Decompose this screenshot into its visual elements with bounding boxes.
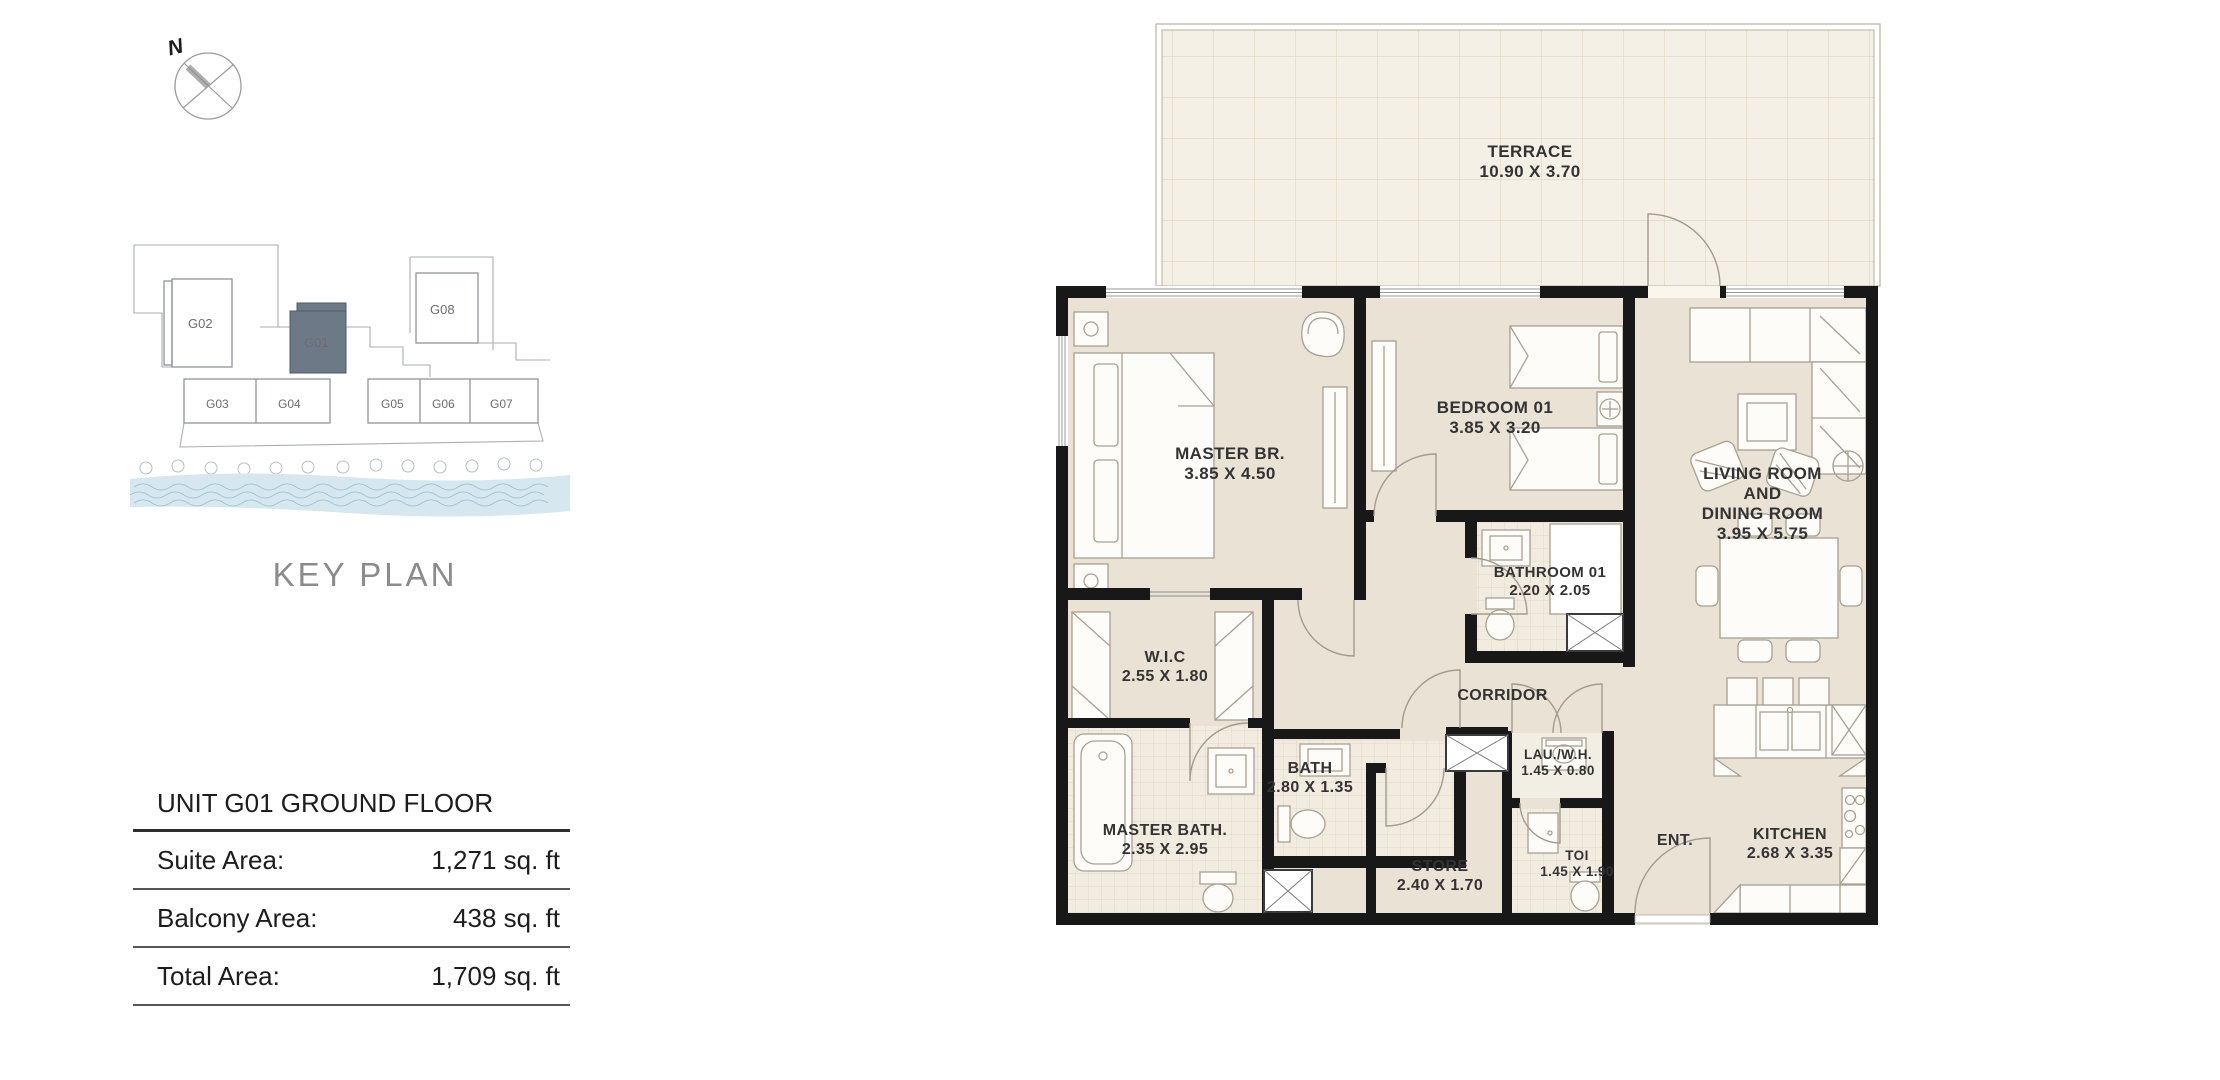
floorplan-sheet: N bbox=[0, 0, 2220, 1080]
room-dims: 2.35 X 2.95 bbox=[1072, 841, 1258, 860]
master-armchair bbox=[1302, 312, 1344, 357]
room-dims: 3.85 X 4.50 bbox=[1130, 464, 1330, 484]
unit-label-g03: G03 bbox=[206, 397, 229, 411]
key-plan-caption: KEY PLAN bbox=[240, 556, 490, 594]
room-dims: 2.55 X 1.80 bbox=[1090, 668, 1240, 687]
table-row-suite: Suite Area: 1,271 sq. ft bbox=[133, 832, 570, 890]
room-name: BATH bbox=[1240, 760, 1380, 779]
room-dims: 2.20 X 2.05 bbox=[1464, 582, 1636, 600]
store-label: STORE 2.40 X 1.70 bbox=[1362, 858, 1518, 896]
room-dims: 3.95 X 5.75 bbox=[1665, 524, 1860, 544]
unit-label-g05: G05 bbox=[381, 397, 404, 411]
row-label: Total Area: bbox=[157, 961, 280, 992]
room-name: STORE bbox=[1362, 858, 1518, 877]
room-dims: 2.80 X 1.35 bbox=[1240, 779, 1380, 798]
bedroom-01-label: BEDROOM 01 3.85 X 3.20 bbox=[1395, 398, 1595, 438]
room-name: LAU./W.H. bbox=[1502, 747, 1614, 763]
row-label: Balcony Area: bbox=[157, 903, 317, 934]
room-name: TOI bbox=[1518, 848, 1636, 864]
row-value: 1,271 sq. ft bbox=[431, 845, 560, 876]
unit-label-g06: G06 bbox=[432, 397, 455, 411]
room-name: KITCHEN bbox=[1712, 826, 1868, 845]
room-dims: 2.68 X 3.35 bbox=[1712, 845, 1868, 864]
unit-label-g08: G08 bbox=[430, 302, 455, 317]
room-name: MASTER BATH. bbox=[1072, 822, 1258, 841]
shoreline-trees bbox=[140, 458, 542, 475]
corridor-label: CORRIDOR bbox=[1420, 687, 1585, 706]
room-dims: 10.90 X 3.70 bbox=[1420, 162, 1640, 182]
water-band bbox=[130, 473, 570, 516]
table-row-balcony: Balcony Area: 438 sq. ft bbox=[133, 890, 570, 948]
unit-label-g02: G02 bbox=[188, 316, 213, 331]
room-dims: 1.45 X 0.80 bbox=[1502, 763, 1614, 779]
room-name: BEDROOM 01 bbox=[1395, 398, 1595, 418]
unit-label-g07: G07 bbox=[490, 397, 513, 411]
wic-label: W.I.C 2.55 X 1.80 bbox=[1090, 649, 1240, 687]
floor-plan: TERRACE 10.90 X 3.70 MASTER BR. 3.85 X 4… bbox=[1050, 16, 1882, 940]
row-value: 438 sq. ft bbox=[453, 903, 560, 934]
room-dims: 3.85 X 3.20 bbox=[1395, 418, 1595, 438]
bath-label: BATH 2.80 X 1.35 bbox=[1240, 760, 1380, 798]
room-dims: 1.45 X 1.90 bbox=[1518, 864, 1636, 880]
laundry-label: LAU./W.H. 1.45 X 0.80 bbox=[1502, 747, 1614, 779]
unit-label-g01: G01 bbox=[304, 335, 329, 350]
area-table: UNIT G01 GROUND FLOOR Suite Area: 1,271 … bbox=[133, 786, 570, 1006]
room-name: CORRIDOR bbox=[1420, 687, 1585, 706]
room-dims: 2.40 X 1.70 bbox=[1362, 877, 1518, 896]
unit-title: UNIT G01 GROUND FLOOR bbox=[133, 786, 570, 832]
room-name: W.I.C bbox=[1090, 649, 1240, 668]
room-name: TERRACE bbox=[1420, 142, 1640, 162]
row-value: 1,709 sq. ft bbox=[431, 961, 560, 992]
master-br-label: MASTER BR. 3.85 X 4.50 bbox=[1130, 444, 1330, 484]
table-row-total: Total Area: 1,709 sq. ft bbox=[133, 948, 570, 1006]
bathroom-01-label: BATHROOM 01 2.20 X 2.05 bbox=[1464, 564, 1636, 599]
room-name: MASTER BR. bbox=[1130, 444, 1330, 464]
terrace-label: TERRACE 10.90 X 3.70 bbox=[1420, 142, 1640, 182]
row-label: Suite Area: bbox=[157, 845, 284, 876]
entrance-label: ENT. bbox=[1633, 832, 1717, 851]
master-bath-label: MASTER BATH. 2.35 X 2.95 bbox=[1072, 822, 1258, 860]
key-plan-map: G02 G01 G08 G03 G04 G05 G06 G07 bbox=[118, 215, 588, 525]
living-dining-label: LIVING ROOM AND DINING ROOM 3.95 X 5.75 bbox=[1665, 464, 1860, 544]
room-name: LIVING ROOM AND DINING ROOM bbox=[1665, 464, 1860, 524]
room-name: ENT. bbox=[1633, 832, 1717, 851]
kitchen-label: KITCHEN 2.68 X 3.35 bbox=[1712, 826, 1868, 864]
kitchen-stools bbox=[1727, 678, 1829, 705]
room-name: BATHROOM 01 bbox=[1464, 564, 1636, 582]
unit-label-g04: G04 bbox=[278, 397, 301, 411]
toi-label: TOI 1.45 X 1.90 bbox=[1518, 848, 1636, 880]
